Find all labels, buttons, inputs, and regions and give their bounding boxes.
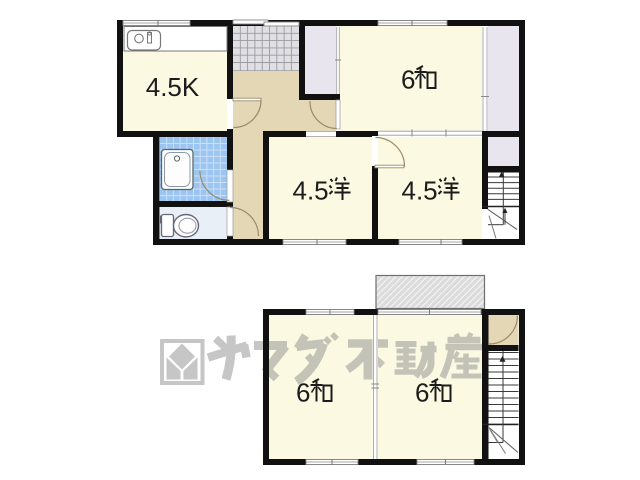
svg-text:4.5: 4.5 — [402, 175, 438, 205]
svg-text:6: 6 — [415, 378, 429, 408]
svg-text:4.5: 4.5 — [293, 175, 329, 205]
svg-text:6: 6 — [401, 64, 415, 94]
svg-text:4.5K: 4.5K — [146, 72, 200, 102]
svg-text:6: 6 — [296, 378, 310, 408]
